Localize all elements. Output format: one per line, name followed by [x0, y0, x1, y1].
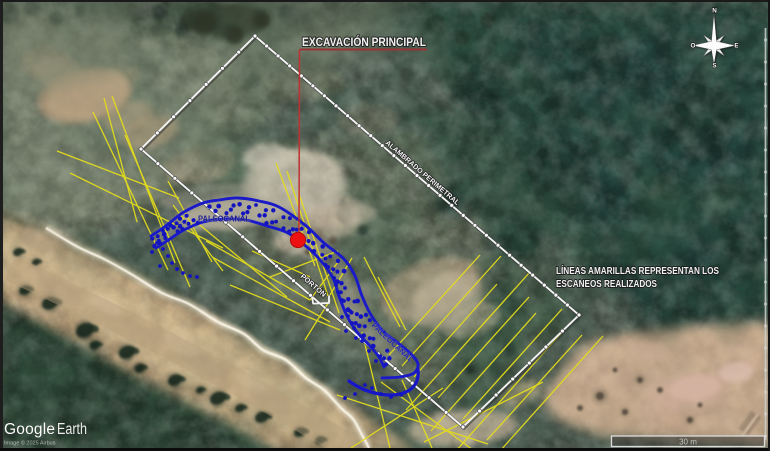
svg-text:Google: Google	[4, 421, 55, 438]
svg-text:E: E	[734, 43, 738, 50]
svg-text:LÍNEAS AMARILLAS REPRESENTAN L: LÍNEAS AMARILLAS REPRESENTAN LOS	[556, 264, 719, 277]
svg-text:Image © 2025 Airbus: Image © 2025 Airbus	[4, 440, 56, 447]
svg-text:O: O	[691, 43, 696, 50]
svg-text:PALEOCANAL: PALEOCANAL	[198, 215, 250, 224]
svg-text:Earth: Earth	[57, 421, 87, 438]
svg-text:EXCAVACIÓN PRINCIPAL: EXCAVACIÓN PRINCIPAL	[302, 36, 426, 49]
svg-text:30 m: 30 m	[679, 438, 697, 447]
svg-text:N: N	[712, 8, 717, 15]
svg-text:S: S	[712, 63, 716, 70]
svg-text:ESCANEOS REALIZADOS: ESCANEOS REALIZADOS	[556, 278, 657, 290]
